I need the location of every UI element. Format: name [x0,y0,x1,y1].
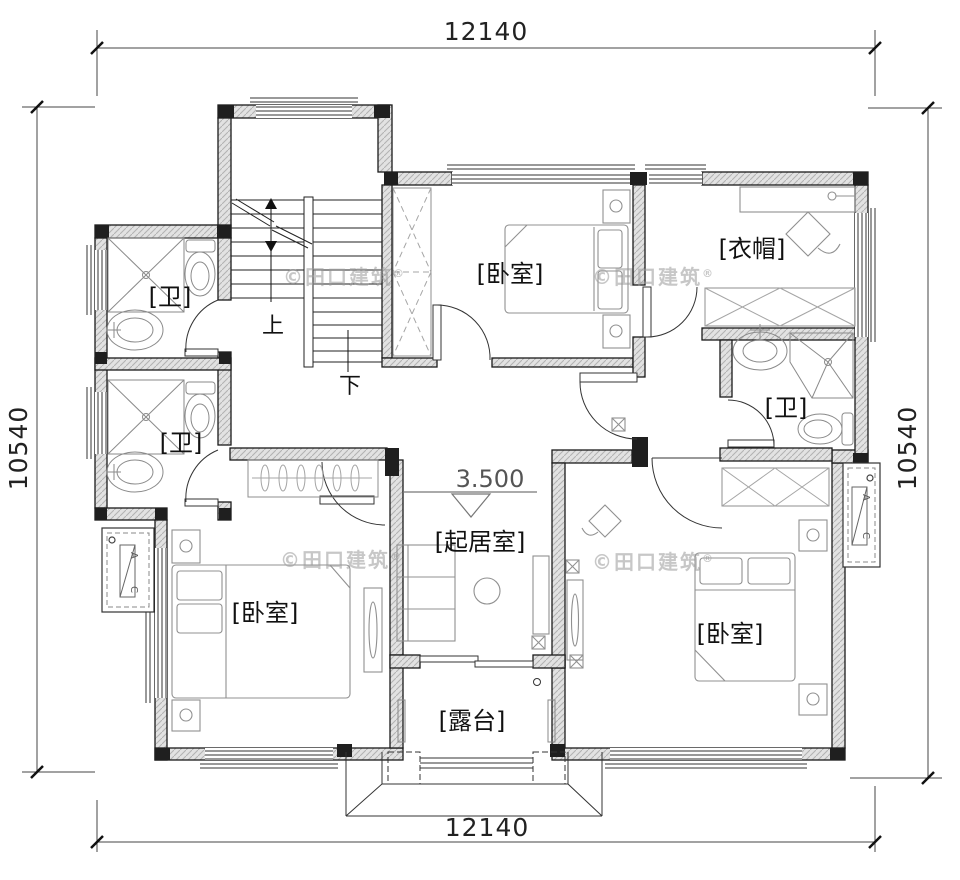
sink-bath2 [107,452,163,492]
floor-plan-page: 12140 12140 10540 10540 [0,0,960,880]
watermark-reg: ® [702,267,715,280]
room-label-bedroom-top: [卧室] [477,260,544,288]
outlet-marker [570,655,583,668]
door-terrace-slider [420,656,541,686]
stair-up-label: 上 [262,314,284,339]
window-bedroom-top [447,165,635,185]
nightstand [172,700,200,731]
stool-bedroom-right [582,505,621,537]
porch-roof [346,752,602,816]
ac-left-label-c: C [128,586,139,593]
ac-bay-right [843,463,880,567]
watermark-reg: ® [390,550,403,563]
watermark-reg: ® [702,552,715,565]
bed-right [695,553,795,681]
room-label-living: [起居室] [435,528,526,556]
stool-cloakroom [786,212,840,256]
cloakroom-counter [740,187,855,212]
watermark-text: ©田口建筑 [592,550,702,574]
coffee-table-living [474,578,500,604]
outlet-marker [566,560,579,573]
door-bedroom-right [652,458,722,528]
window-bedroom-right-bottom [605,748,807,768]
svg-text:©田口建筑®: ©田口建筑® [280,548,403,572]
bed-left [172,565,350,698]
room-label-cloakroom: [衣帽] [719,235,786,263]
dimension-bottom-value: 12140 [445,813,530,842]
dimension-left-value: 10540 [4,406,33,491]
watermark-reg: ® [393,267,406,280]
door-corridor [580,373,637,439]
door-cloakroom [643,287,697,337]
ac-right-label-c: C [860,532,871,539]
outlet-marker [532,636,545,649]
nightstand [799,684,827,715]
room-label-bedroom-right: [卧室] [697,620,764,648]
dimension-top-value: 12140 [444,17,529,46]
dresser-bedroom-right [567,580,583,660]
room-label-bath-lower: [卫] [160,429,203,457]
shower-bath-right [790,333,853,398]
nightstand [603,315,630,348]
nightstand [799,520,827,551]
level-marker [403,492,537,517]
nightstand [172,530,200,563]
door-bedroom-left [320,462,385,525]
window-cloakroom-right [855,208,875,342]
room-label-bath-right: [卫] [765,394,808,422]
window-hall-top [645,165,706,185]
watermark-text: ©田口建筑 [280,548,390,572]
closet-bedroom-left [248,460,378,497]
room-label-bedroom-left: [卧室] [232,599,299,627]
room-label-bath-upper: [卫] [149,283,192,311]
wardrobe-bedroom-right [722,468,829,506]
outlet-marker [612,418,625,431]
window-bath2-left [87,387,107,459]
window-bath1-left [87,245,107,315]
dimension-right-value: 10540 [893,406,922,491]
watermark-text: ©田口建筑 [592,265,702,289]
sofa-living [397,545,455,641]
svg-text:©田口建筑®: ©田口建筑® [283,265,406,289]
window-stair-top [250,98,358,118]
window-bedroom-left-bottom [200,748,338,768]
ac-bay-left [102,528,154,612]
door-bedroom-top [433,305,490,360]
stair-down-label: 下 [339,374,361,399]
nightstand [603,190,630,223]
door-bath2 [185,450,218,506]
floor-plan-drawing: 12140 12140 10540 10540 [0,0,960,880]
level-value: 3.500 [456,465,525,493]
room-label-terrace: [露台] [439,707,506,735]
watermark-text: ©田口建筑 [283,265,393,289]
svg-text:©田口建筑®: ©田口建筑® [592,265,715,289]
ac-left-label-a: A [128,552,139,559]
ac-right-label-a: A [860,494,871,501]
dresser-bedroom-left [364,588,382,672]
wardrobe-cloakroom [705,288,855,326]
svg-text:©田口建筑®: ©田口建筑® [592,550,715,574]
sink-bath1 [107,310,163,350]
tv-cabinet-living [533,556,549,634]
